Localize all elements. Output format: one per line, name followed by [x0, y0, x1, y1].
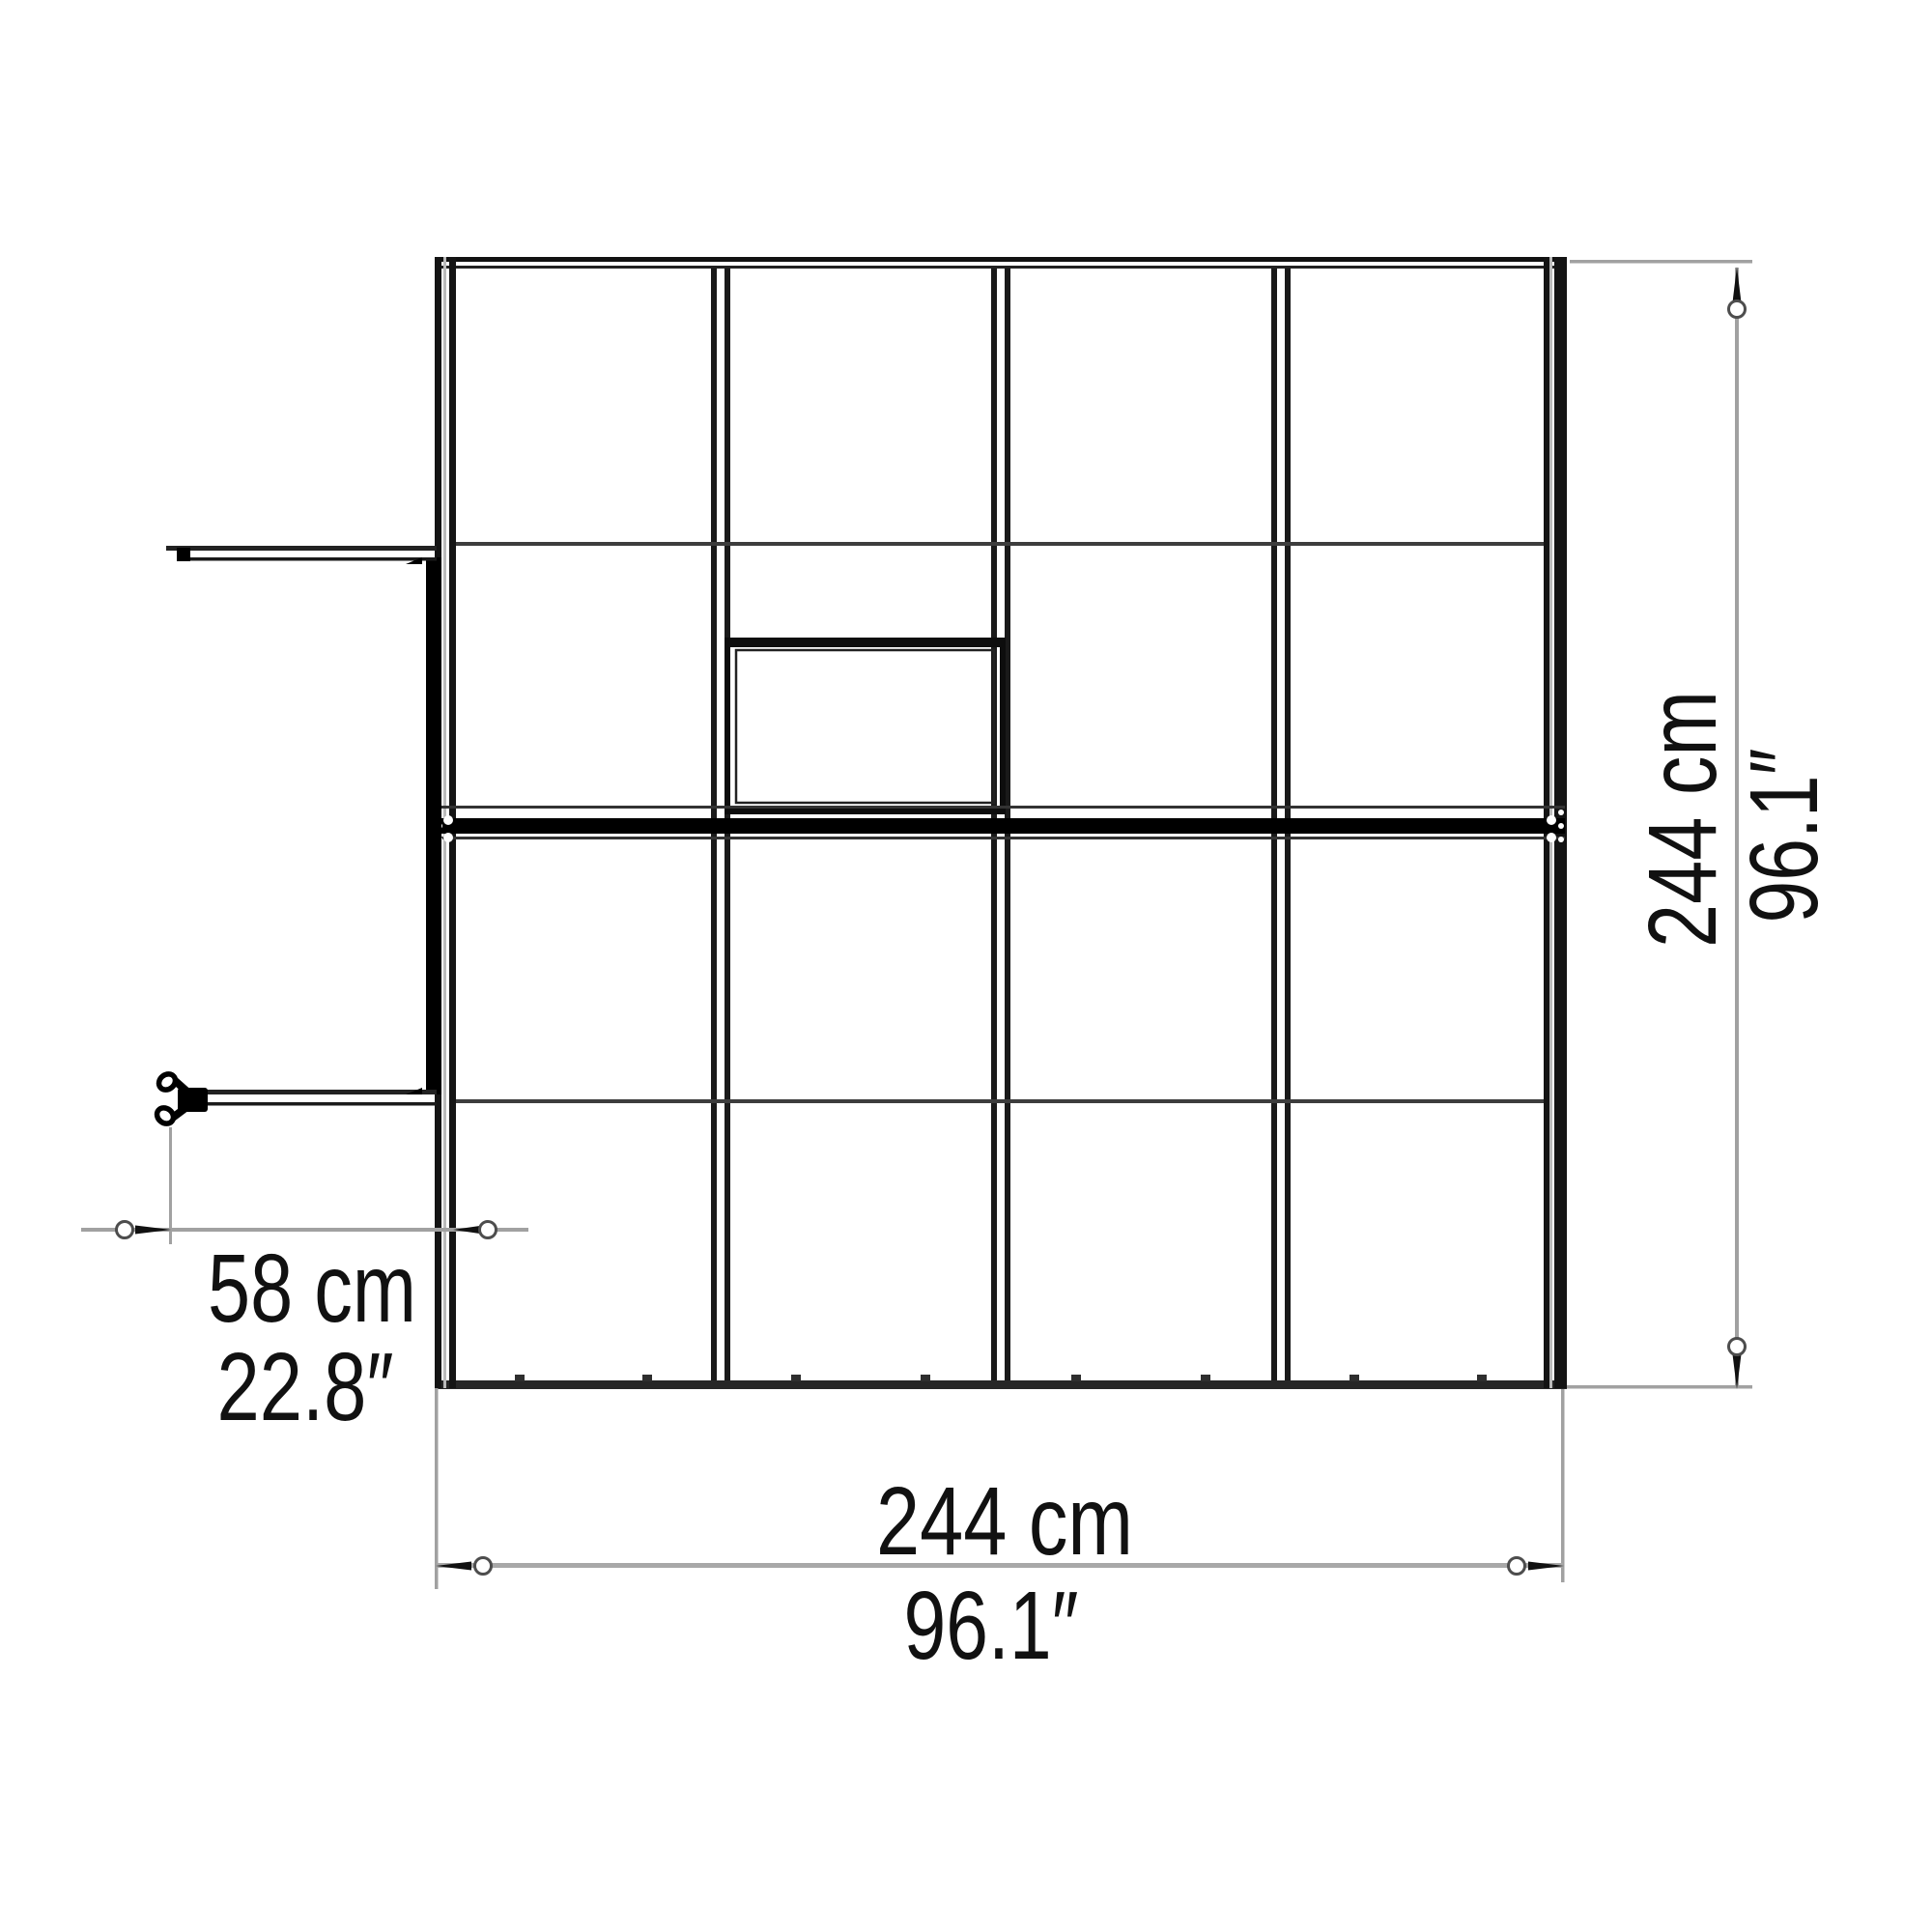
svg-text:244 cm: 244 cm: [1629, 691, 1737, 948]
svg-text:96.1″: 96.1″: [904, 1572, 1079, 1680]
svg-text:58 cm: 58 cm: [208, 1235, 416, 1343]
svg-text:22.8″: 22.8″: [217, 1333, 394, 1441]
svg-text:96.1″: 96.1″: [1730, 749, 1838, 923]
svg-text:244 cm: 244 cm: [876, 1467, 1133, 1576]
